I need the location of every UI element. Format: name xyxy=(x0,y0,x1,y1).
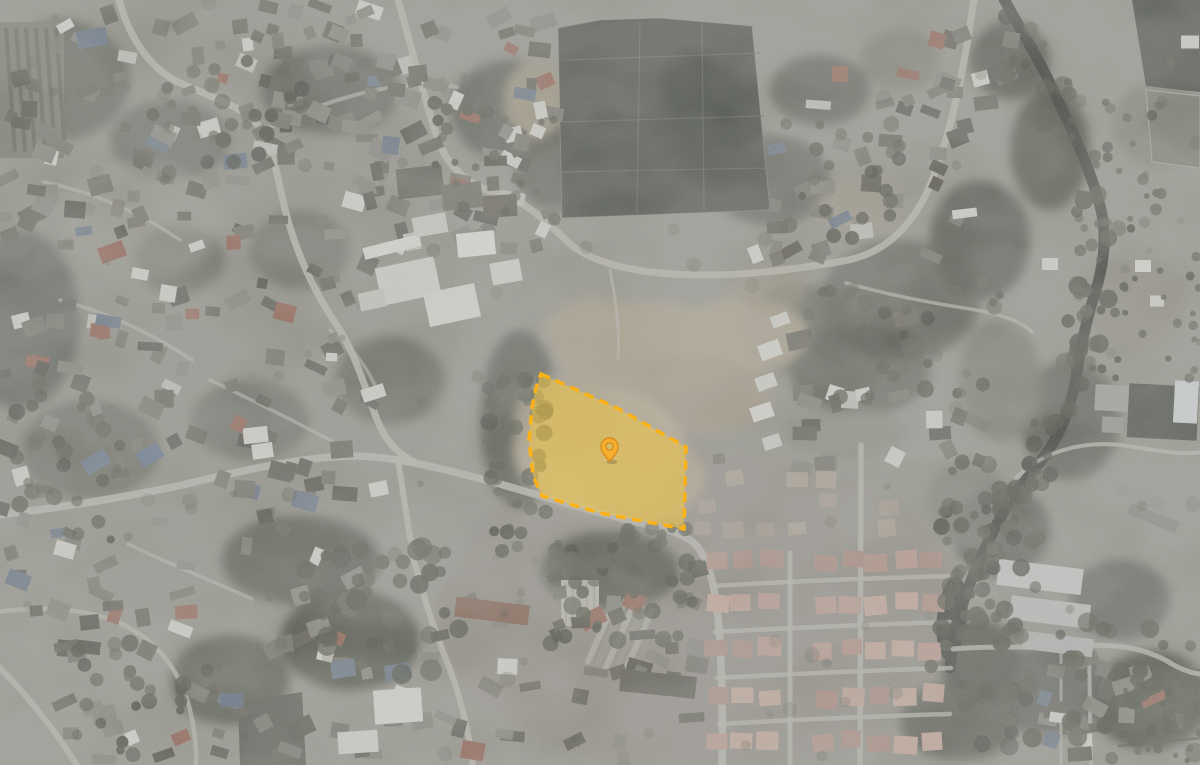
map-viewport[interactable] xyxy=(0,0,1200,765)
satellite-map[interactable] xyxy=(0,0,1200,765)
image-grain-overlay xyxy=(0,0,1200,765)
